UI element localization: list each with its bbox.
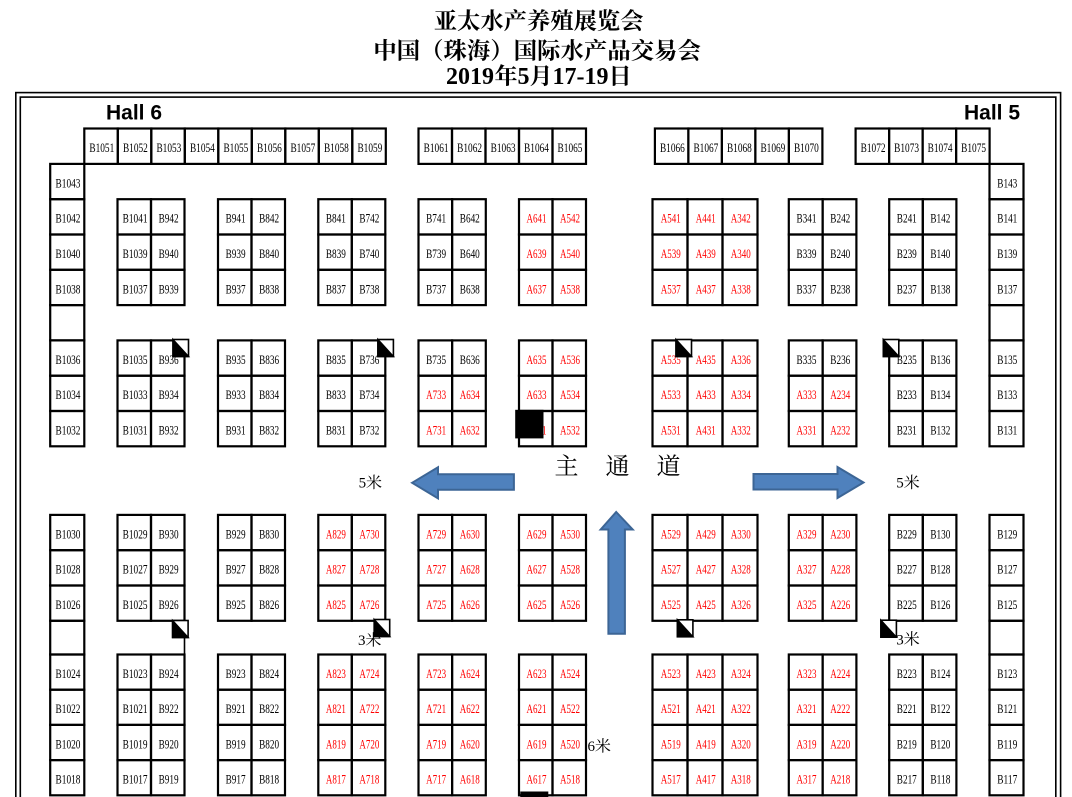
svg-text:A626: A626 [460,598,480,612]
svg-text:B1074: B1074 [928,141,953,155]
svg-text:B824: B824 [259,667,280,681]
svg-text:B929: B929 [226,527,246,541]
svg-text:B732: B732 [359,423,379,437]
svg-text:5: 5 [896,476,904,492]
svg-text:B1018: B1018 [56,773,81,787]
svg-text:A629: A629 [527,527,547,541]
svg-text:A522: A522 [560,702,580,716]
svg-text:B1032: B1032 [56,423,81,437]
svg-text:A532: A532 [560,423,580,437]
svg-text:B840: B840 [259,247,279,261]
svg-text:A321: A321 [797,702,817,716]
svg-text:B941: B941 [226,212,246,226]
svg-text:B1072: B1072 [861,141,886,155]
svg-text:A519: A519 [661,737,681,751]
svg-text:B240: B240 [830,247,850,261]
svg-text:A537: A537 [661,282,681,296]
svg-text:B137: B137 [997,282,1017,296]
svg-text:A326: A326 [731,598,751,612]
svg-text:B1027: B1027 [123,563,148,577]
svg-text:B1057: B1057 [290,141,315,155]
svg-text:B929: B929 [159,563,179,577]
svg-text:B833: B833 [326,388,346,402]
svg-text:A539: A539 [661,247,681,261]
svg-text:A224: A224 [830,667,851,681]
svg-text:A634: A634 [460,388,481,402]
svg-text:B1021: B1021 [123,702,148,716]
svg-text:B1068: B1068 [727,141,752,155]
svg-text:A525: A525 [661,598,681,612]
svg-text:A520: A520 [560,737,580,751]
svg-text:B223: B223 [897,667,917,681]
svg-text:B834: B834 [259,388,280,402]
svg-text:B1059: B1059 [357,141,382,155]
svg-text:B125: B125 [997,598,1017,612]
svg-text:B233: B233 [897,388,917,402]
svg-text:B738: B738 [359,282,379,296]
svg-text:A730: A730 [359,527,379,541]
svg-text:B921: B921 [226,702,246,716]
svg-text:A324: A324 [731,667,752,681]
svg-text:A439: A439 [696,247,716,261]
svg-text:B238: B238 [830,282,850,296]
svg-text:A641: A641 [527,212,547,226]
svg-text:B235: B235 [897,353,917,367]
svg-text:B1054: B1054 [190,141,215,155]
svg-text:A821: A821 [326,702,346,716]
svg-text:B131: B131 [997,423,1017,437]
svg-text:B142: B142 [930,212,950,226]
svg-text:B925: B925 [226,598,246,612]
svg-text:A521: A521 [661,702,681,716]
svg-text:B831: B831 [326,423,346,437]
svg-text:A726: A726 [359,598,379,612]
svg-text:A338: A338 [731,282,751,296]
svg-text:B129: B129 [997,527,1017,541]
svg-text:B1075: B1075 [961,141,986,155]
svg-text:B931: B931 [226,423,246,437]
svg-text:A435: A435 [696,353,716,367]
svg-text:B1053: B1053 [156,141,181,155]
svg-text:B133: B133 [997,388,1017,402]
svg-text:A527: A527 [661,563,681,577]
svg-text:17-19: 17-19 [553,64,609,90]
svg-text:B835: B835 [326,353,346,367]
svg-text:A635: A635 [527,353,547,367]
svg-text:B229: B229 [897,527,917,541]
svg-text:B241: B241 [897,212,917,226]
svg-text:3: 3 [896,633,904,649]
svg-text:A632: A632 [460,423,480,437]
svg-text:A633: A633 [527,388,547,402]
svg-text:B838: B838 [259,282,279,296]
svg-text:B828: B828 [259,563,279,577]
svg-text:A329: A329 [797,527,817,541]
svg-text:B735: B735 [426,353,446,367]
svg-text:A817: A817 [326,773,346,787]
svg-text:A637: A637 [527,282,547,296]
svg-text:B1029: B1029 [123,527,148,541]
svg-text:B127: B127 [997,563,1017,577]
svg-text:A421: A421 [696,702,716,716]
svg-text:B1025: B1025 [123,598,148,612]
svg-text:B139: B139 [997,247,1017,261]
svg-text:2019: 2019 [446,64,494,90]
svg-text:B119: B119 [997,737,1017,751]
svg-text:A325: A325 [797,598,817,612]
svg-text:B636: B636 [460,353,480,367]
svg-text:B1051: B1051 [89,141,114,155]
svg-text:B1022: B1022 [56,702,81,716]
svg-text:A342: A342 [731,212,751,226]
svg-text:Hall 5: Hall 5 [964,102,1020,125]
svg-text:B1043: B1043 [56,176,81,190]
svg-text:B1040: B1040 [56,247,81,261]
svg-text:A441: A441 [696,212,716,226]
svg-text:B932: B932 [159,423,179,437]
svg-text:A724: A724 [359,667,380,681]
svg-text:B917: B917 [226,773,246,787]
svg-text:A317: A317 [797,773,817,787]
svg-text:B734: B734 [359,388,380,402]
svg-text:B919: B919 [159,773,179,787]
svg-text:B930: B930 [159,527,179,541]
svg-text:B225: B225 [897,598,917,612]
svg-text:B1023: B1023 [123,667,148,681]
svg-text:B1024: B1024 [56,667,81,681]
svg-text:A330: A330 [731,527,751,541]
svg-text:B820: B820 [259,737,279,751]
svg-text:B1031: B1031 [123,423,148,437]
svg-text:A618: A618 [460,773,480,787]
svg-text:B924: B924 [159,667,180,681]
svg-text:A423: A423 [696,667,716,681]
svg-text:A625: A625 [527,598,547,612]
svg-text:B132: B132 [930,423,950,437]
svg-text:B842: B842 [259,212,279,226]
svg-text:B136: B136 [930,353,950,367]
svg-text:B939: B939 [226,247,246,261]
svg-text:A619: A619 [527,737,547,751]
svg-text:A320: A320 [731,737,751,751]
svg-text:B1052: B1052 [123,141,148,155]
svg-text:B227: B227 [897,563,917,577]
svg-text:B1041: B1041 [123,212,148,226]
svg-text:B122: B122 [930,702,950,716]
svg-text:A717: A717 [426,773,446,787]
svg-text:B922: B922 [159,702,179,716]
svg-text:B934: B934 [159,388,180,402]
svg-text:B1035: B1035 [123,353,148,367]
svg-text:B935: B935 [226,353,246,367]
svg-text:A727: A727 [426,563,446,577]
svg-text:B231: B231 [897,423,917,437]
svg-text:A718: A718 [359,773,379,787]
svg-text:B822: B822 [259,702,279,716]
svg-text:6: 6 [588,739,596,755]
svg-text:A232: A232 [830,423,850,437]
svg-text:B1039: B1039 [123,247,148,261]
svg-text:B143: B143 [997,176,1017,190]
svg-text:A427: A427 [696,563,716,577]
svg-text:Hall 6: Hall 6 [106,102,162,125]
svg-text:B1062: B1062 [457,141,482,155]
svg-text:B135: B135 [997,353,1017,367]
svg-text:A431: A431 [696,423,716,437]
svg-text:B741: B741 [426,212,446,226]
svg-text:A720: A720 [359,737,379,751]
svg-text:A433: A433 [696,388,716,402]
svg-text:B937: B937 [226,282,246,296]
svg-text:B837: B837 [326,282,346,296]
svg-text:B739: B739 [426,247,446,261]
svg-text:B341: B341 [797,212,817,226]
svg-text:B219: B219 [897,737,917,751]
svg-text:B237: B237 [897,282,917,296]
svg-text:A524: A524 [560,667,581,681]
svg-text:B923: B923 [226,667,246,681]
svg-text:B1036: B1036 [56,353,81,367]
svg-text:B120: B120 [930,737,950,751]
svg-text:B236: B236 [830,353,850,367]
svg-text:B1026: B1026 [56,598,81,612]
svg-text:B1017: B1017 [123,773,148,787]
svg-text:A526: A526 [560,598,580,612]
svg-text:B126: B126 [930,598,950,612]
svg-text:A334: A334 [731,388,752,402]
svg-text:B1037: B1037 [123,282,148,296]
svg-text:B1055: B1055 [223,141,248,155]
svg-text:A437: A437 [696,282,716,296]
svg-text:A719: A719 [426,737,446,751]
svg-text:A323: A323 [797,667,817,681]
svg-text:A425: A425 [696,598,716,612]
svg-text:A328: A328 [731,563,751,577]
svg-text:B1030: B1030 [56,527,81,541]
svg-text:B1042: B1042 [56,212,81,226]
svg-text:A530: A530 [560,527,580,541]
svg-text:B221: B221 [897,702,917,716]
svg-text:B640: B640 [460,247,480,261]
svg-text:B638: B638 [460,282,480,296]
svg-text:A827: A827 [326,563,346,577]
svg-text:B830: B830 [259,527,279,541]
svg-text:A517: A517 [661,773,681,787]
svg-text:A621: A621 [527,702,547,716]
svg-text:A332: A332 [731,423,751,437]
svg-text:B1020: B1020 [56,737,81,751]
svg-text:B1069: B1069 [760,141,785,155]
svg-text:A829: A829 [326,527,346,541]
svg-text:A617: A617 [527,773,547,787]
svg-text:B339: B339 [797,247,817,261]
svg-text:A728: A728 [359,563,379,577]
svg-text:B239: B239 [897,247,917,261]
svg-text:B736: B736 [359,353,379,367]
svg-text:A729: A729 [426,527,446,541]
svg-text:A721: A721 [426,702,446,716]
svg-text:B839: B839 [326,247,346,261]
svg-text:A534: A534 [560,388,581,402]
svg-text:A733: A733 [426,388,446,402]
svg-text:B117: B117 [997,773,1017,787]
svg-text:A722: A722 [359,702,379,716]
svg-text:A327: A327 [797,563,817,577]
svg-text:B335: B335 [797,353,817,367]
svg-text:B1073: B1073 [894,141,919,155]
svg-text:B337: B337 [797,282,817,296]
svg-text:B926: B926 [159,598,179,612]
svg-text:B740: B740 [359,247,379,261]
svg-text:A624: A624 [460,667,481,681]
svg-text:5: 5 [518,64,530,90]
svg-text:B919: B919 [226,737,246,751]
svg-text:A531: A531 [661,423,681,437]
svg-text:A220: A220 [830,737,850,751]
svg-text:B737: B737 [426,282,446,296]
svg-text:B121: B121 [997,702,1017,716]
svg-text:B1019: B1019 [123,737,148,751]
svg-text:A825: A825 [326,598,346,612]
svg-text:A336: A336 [731,353,751,367]
svg-text:B836: B836 [259,353,279,367]
svg-text:B920: B920 [159,737,179,751]
svg-text:A419: A419 [696,737,716,751]
svg-text:B1056: B1056 [257,141,282,155]
svg-text:A731: A731 [426,423,446,437]
svg-text:A540: A540 [560,247,580,261]
svg-text:B841: B841 [326,212,346,226]
svg-text:A639: A639 [527,247,547,261]
svg-text:B927: B927 [226,563,246,577]
svg-text:A823: A823 [326,667,346,681]
svg-text:B1064: B1064 [524,141,549,155]
svg-text:B1070: B1070 [794,141,819,155]
svg-text:B123: B123 [997,667,1017,681]
svg-text:B940: B940 [159,247,179,261]
svg-text:A222: A222 [830,702,850,716]
svg-text:B138: B138 [930,282,950,296]
svg-text:B818: B818 [259,773,279,787]
svg-text:A331: A331 [797,423,817,437]
svg-text:B217: B217 [897,773,917,787]
svg-text:A528: A528 [560,563,580,577]
svg-text:3: 3 [358,633,366,649]
svg-text:B1033: B1033 [123,388,148,402]
svg-text:B939: B939 [159,282,179,296]
svg-text:A628: A628 [460,563,480,577]
svg-text:A622: A622 [460,702,480,716]
svg-text:A523: A523 [661,667,681,681]
svg-text:B1067: B1067 [693,141,718,155]
svg-text:B130: B130 [930,527,950,541]
svg-text:B742: B742 [359,212,379,226]
svg-text:A541: A541 [661,212,681,226]
svg-text:B1061: B1061 [424,141,449,155]
svg-text:B1063: B1063 [491,141,516,155]
svg-text:A318: A318 [731,773,751,787]
svg-text:A230: A230 [830,527,850,541]
svg-text:A340: A340 [731,247,751,261]
svg-text:A228: A228 [830,563,850,577]
svg-text:B832: B832 [259,423,279,437]
svg-text:B242: B242 [830,212,850,226]
svg-text:B1066: B1066 [660,141,685,155]
svg-text:B141: B141 [997,212,1017,226]
svg-text:A319: A319 [797,737,817,751]
svg-text:B1038: B1038 [56,282,81,296]
svg-text:B933: B933 [226,388,246,402]
svg-text:A725: A725 [426,598,446,612]
svg-text:B1058: B1058 [324,141,349,155]
svg-text:A542: A542 [560,212,580,226]
svg-text:A234: A234 [830,388,851,402]
svg-text:A529: A529 [661,527,681,541]
svg-text:A429: A429 [696,527,716,541]
svg-text:A627: A627 [527,563,547,577]
svg-text:B942: B942 [159,212,179,226]
svg-text:B134: B134 [930,388,951,402]
svg-text:A630: A630 [460,527,480,541]
svg-text:A417: A417 [696,773,716,787]
svg-text:B642: B642 [460,212,480,226]
svg-text:A620: A620 [460,737,480,751]
svg-text:B118: B118 [930,773,950,787]
svg-text:A218: A218 [830,773,850,787]
svg-text:A538: A538 [560,282,580,296]
svg-text:A322: A322 [731,702,751,716]
svg-text:A333: A333 [797,388,817,402]
svg-text:B128: B128 [930,563,950,577]
svg-text:B124: B124 [930,667,951,681]
svg-text:A536: A536 [560,353,580,367]
svg-text:A226: A226 [830,598,850,612]
svg-text:A819: A819 [326,737,346,751]
svg-text:A623: A623 [527,667,547,681]
svg-text:A533: A533 [661,388,681,402]
svg-text:B140: B140 [930,247,950,261]
svg-text:5: 5 [359,476,367,492]
svg-text:B1065: B1065 [558,141,583,155]
svg-text:A723: A723 [426,667,446,681]
svg-text:B1028: B1028 [56,563,81,577]
svg-text:B1034: B1034 [56,388,81,402]
svg-text:B826: B826 [259,598,279,612]
svg-text:A518: A518 [560,773,580,787]
